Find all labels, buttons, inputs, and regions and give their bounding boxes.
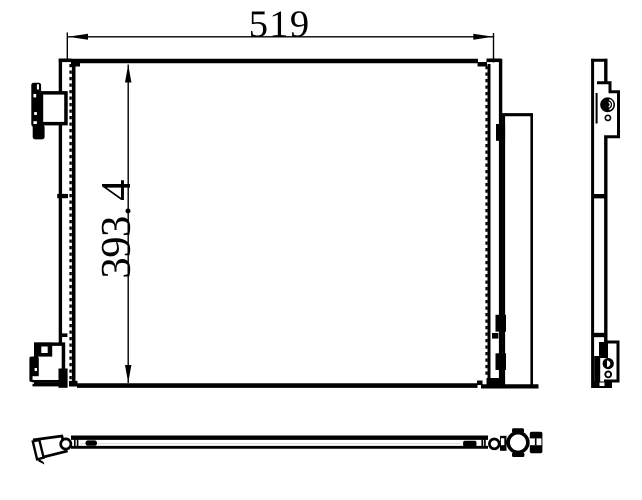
- svg-text:393. 4: 393. 4: [93, 180, 140, 279]
- svg-text:519: 519: [249, 3, 311, 45]
